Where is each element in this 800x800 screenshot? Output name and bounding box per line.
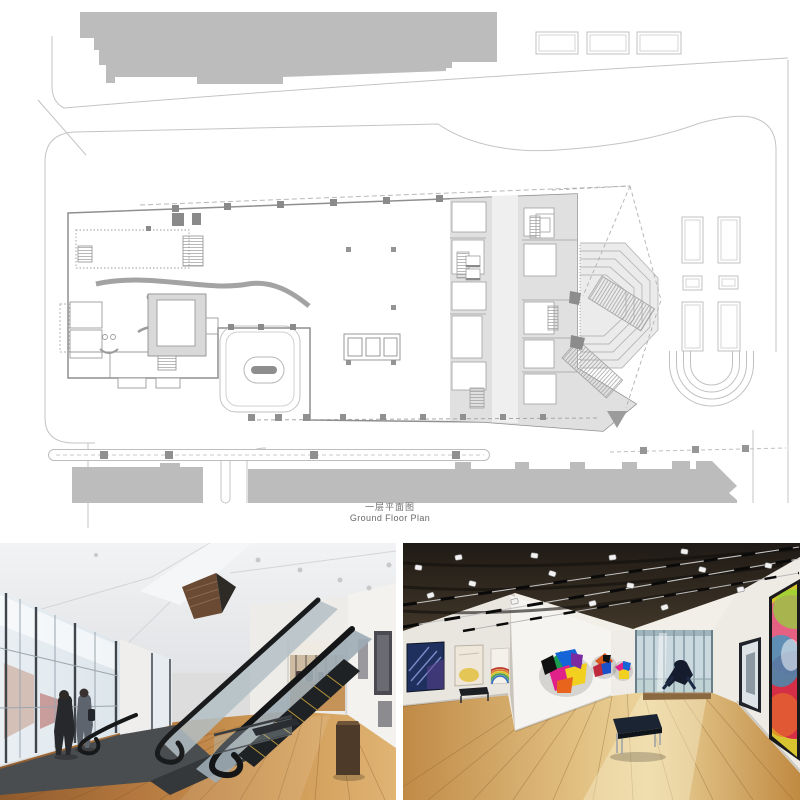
- book-page: 一层平面图 Ground Floor Plan: [0, 0, 800, 800]
- vehicle-ramp: [670, 217, 754, 406]
- photo-escalator-hall: [0, 543, 396, 800]
- artwork-yellow-field: [455, 645, 483, 686]
- dropoff-loop: [220, 326, 300, 412]
- context-building-south-west: [72, 463, 203, 503]
- planters: [536, 32, 681, 54]
- building-corridor-band: [492, 195, 518, 423]
- artwork-blue-streaks: [407, 642, 444, 692]
- elevator-bank: [344, 334, 400, 360]
- canopy-colonnade: [49, 445, 787, 461]
- plan-caption-zh: 一层平面图: [0, 502, 780, 513]
- plan-caption-en: Ground Floor Plan: [0, 513, 780, 524]
- context-building-south-east: [248, 461, 737, 503]
- curtain-wall: [635, 630, 713, 693]
- context-building-north: [80, 12, 497, 84]
- photo-gallery: [403, 543, 800, 800]
- plan-caption: 一层平面图 Ground Floor Plan: [0, 502, 780, 524]
- main-building: [60, 186, 636, 431]
- ground-floor-plan-figure: 一层平面图 Ground Floor Plan: [0, 0, 800, 543]
- artwork-relief-small: [613, 661, 633, 681]
- artwork-framed-gray: [739, 637, 761, 713]
